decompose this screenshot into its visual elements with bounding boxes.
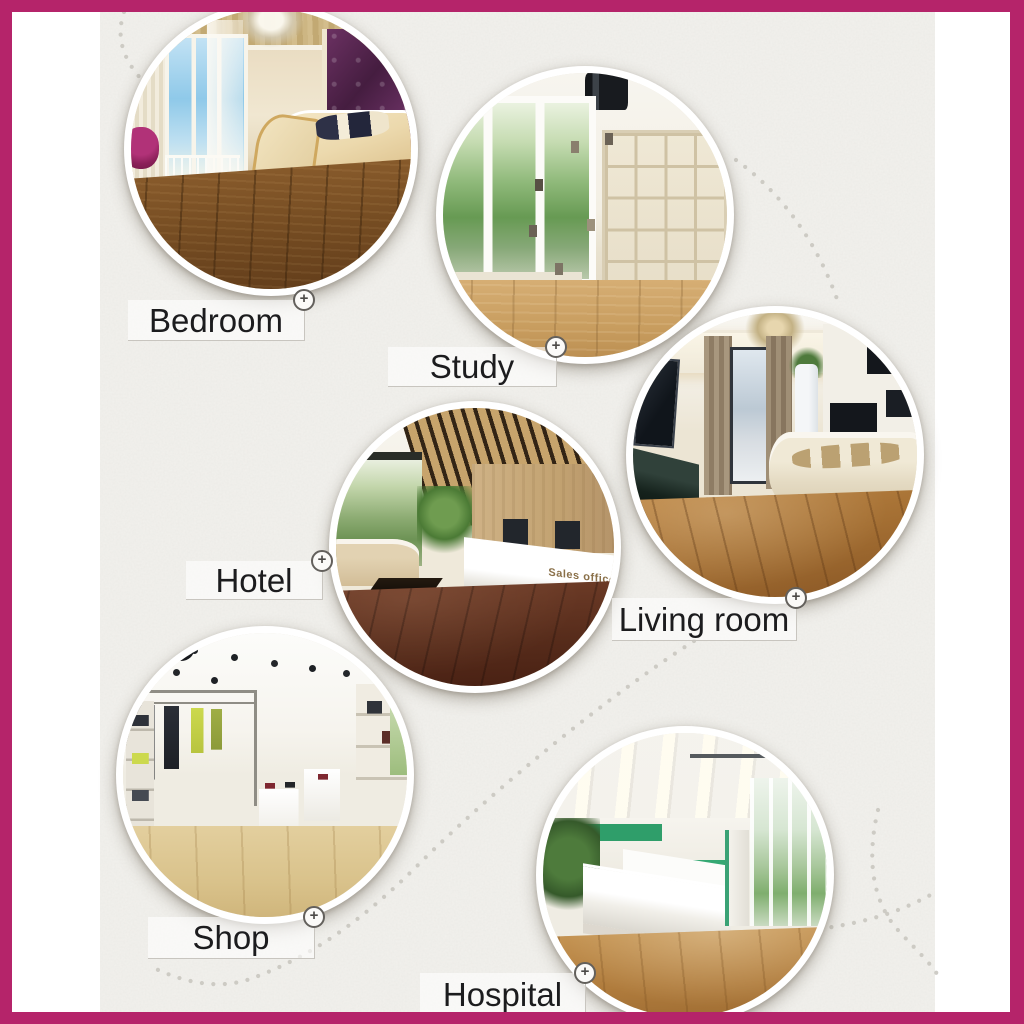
room-label-text: Bedroom bbox=[149, 304, 283, 337]
room-label-text: Hotel bbox=[215, 564, 292, 597]
shop-window bbox=[390, 690, 407, 775]
room-label-living-room: Living room + bbox=[612, 598, 797, 641]
hotel-reception-wall bbox=[472, 464, 614, 553]
plus-circle-icon: + bbox=[293, 289, 315, 311]
shop-shelf-column bbox=[126, 701, 154, 826]
bedroom-stool bbox=[131, 127, 159, 169]
room-label-text: Living room bbox=[619, 603, 790, 636]
room-label-hospital: Hospital + bbox=[420, 973, 586, 1016]
room-label-shop: Shop + bbox=[148, 917, 315, 959]
shop-display-cubes bbox=[259, 769, 344, 831]
plus-circle-icon: + bbox=[574, 962, 596, 984]
bedroom-scene bbox=[131, 9, 411, 289]
plus-circle-icon: + bbox=[785, 587, 807, 609]
study-bookshelf bbox=[602, 130, 727, 295]
room-photo-living-room bbox=[626, 306, 924, 604]
plus-circle-icon: + bbox=[311, 550, 333, 572]
room-label-bedroom: Bedroom + bbox=[128, 300, 305, 341]
room-label-hotel: Hotel + bbox=[186, 561, 323, 600]
room-photo-shop bbox=[116, 626, 414, 924]
room-label-text: Study bbox=[430, 350, 514, 383]
room-label-text: Hospital bbox=[443, 978, 562, 1011]
shop-wood-floor bbox=[123, 826, 407, 917]
room-label-text: Shop bbox=[192, 921, 269, 954]
flooring-scenes-promo: Sales office bbox=[0, 0, 1024, 1024]
bedroom-wood-floor bbox=[131, 158, 411, 289]
shop-scene bbox=[123, 633, 407, 917]
room-photo-bedroom bbox=[124, 2, 418, 296]
hospital-column bbox=[725, 830, 749, 927]
plus-circle-icon: + bbox=[545, 336, 567, 358]
study-window bbox=[443, 96, 596, 286]
room-label-study: Study + bbox=[388, 347, 557, 387]
study-shelf-items bbox=[605, 133, 613, 145]
living-room-wood-floor bbox=[633, 489, 917, 597]
living-room-curtain-left bbox=[704, 336, 732, 495]
plus-circle-icon: + bbox=[303, 906, 325, 928]
hospital-window-wall bbox=[750, 778, 827, 926]
living-room-tv bbox=[633, 357, 680, 449]
living-room-scene bbox=[633, 313, 917, 597]
